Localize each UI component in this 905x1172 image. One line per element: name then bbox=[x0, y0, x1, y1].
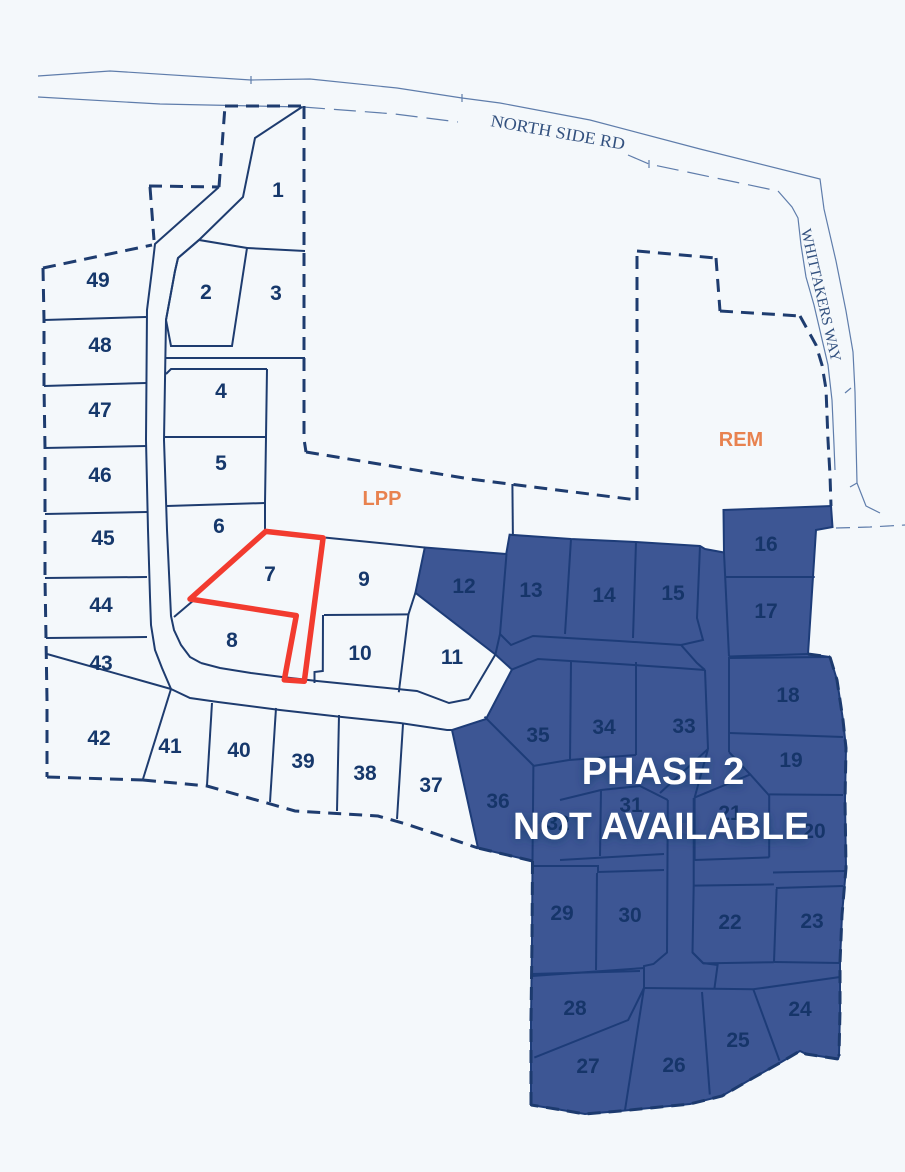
svg-text:26: 26 bbox=[662, 1054, 685, 1077]
svg-text:46: 46 bbox=[88, 464, 111, 487]
svg-text:35: 35 bbox=[526, 724, 550, 747]
svg-text:NOT AVAILABLE: NOT AVAILABLE bbox=[513, 806, 809, 848]
svg-text:28: 28 bbox=[563, 997, 587, 1020]
svg-text:23: 23 bbox=[800, 910, 823, 933]
svg-text:3: 3 bbox=[270, 282, 282, 305]
svg-text:37: 37 bbox=[419, 774, 442, 797]
svg-text:44: 44 bbox=[89, 594, 113, 617]
svg-text:30: 30 bbox=[618, 904, 641, 927]
svg-text:11: 11 bbox=[441, 646, 464, 669]
svg-text:18: 18 bbox=[776, 684, 800, 707]
svg-text:13: 13 bbox=[519, 579, 542, 602]
svg-text:40: 40 bbox=[227, 739, 250, 762]
svg-text:5: 5 bbox=[215, 452, 227, 475]
svg-text:16: 16 bbox=[754, 533, 777, 556]
svg-text:4: 4 bbox=[215, 380, 227, 403]
svg-text:8: 8 bbox=[226, 629, 238, 652]
svg-text:19: 19 bbox=[779, 749, 802, 772]
svg-text:33: 33 bbox=[672, 715, 695, 738]
svg-text:45: 45 bbox=[91, 527, 115, 550]
svg-text:6: 6 bbox=[213, 515, 225, 538]
svg-text:27: 27 bbox=[576, 1055, 599, 1078]
svg-text:42: 42 bbox=[87, 727, 110, 750]
svg-text:36: 36 bbox=[486, 790, 509, 813]
svg-text:10: 10 bbox=[348, 642, 371, 665]
svg-text:41: 41 bbox=[158, 735, 182, 758]
svg-text:24: 24 bbox=[788, 998, 812, 1021]
svg-text:22: 22 bbox=[718, 911, 741, 934]
svg-text:PHASE 2: PHASE 2 bbox=[582, 751, 745, 793]
svg-text:2: 2 bbox=[200, 281, 212, 304]
svg-text:1: 1 bbox=[272, 179, 284, 202]
svg-text:39: 39 bbox=[291, 750, 314, 773]
svg-text:9: 9 bbox=[358, 568, 370, 591]
svg-text:25: 25 bbox=[726, 1029, 750, 1052]
svg-text:48: 48 bbox=[88, 334, 112, 357]
svg-text:12: 12 bbox=[452, 575, 475, 598]
svg-text:7: 7 bbox=[264, 563, 276, 586]
svg-text:29: 29 bbox=[550, 902, 573, 925]
svg-text:34: 34 bbox=[592, 716, 616, 739]
svg-text:49: 49 bbox=[86, 269, 109, 292]
svg-text:14: 14 bbox=[592, 584, 616, 607]
svg-text:15: 15 bbox=[661, 582, 685, 605]
svg-text:LPP: LPP bbox=[363, 488, 402, 510]
svg-text:43: 43 bbox=[89, 652, 112, 675]
svg-text:REM: REM bbox=[719, 429, 763, 451]
svg-text:38: 38 bbox=[353, 762, 377, 785]
svg-text:47: 47 bbox=[88, 399, 111, 422]
svg-text:17: 17 bbox=[754, 600, 777, 623]
